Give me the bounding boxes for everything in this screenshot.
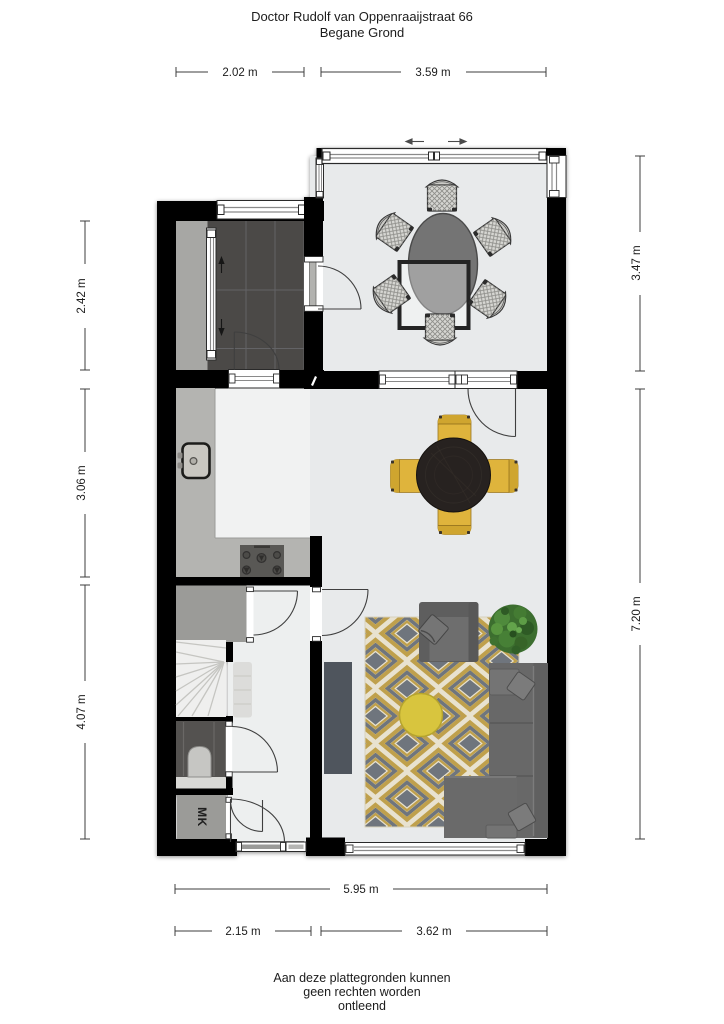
svg-text:5.95 m: 5.95 m (343, 884, 378, 896)
svg-text:MK: MK (195, 807, 209, 827)
svg-text:3.06 m: 3.06 m (76, 465, 88, 500)
svg-text:geen rechten worden: geen rechten worden (303, 985, 420, 999)
svg-text:2.02 m: 2.02 m (222, 67, 257, 79)
svg-text:Aan deze plattegronden kunnen: Aan deze plattegronden kunnen (273, 971, 450, 985)
svg-text:2.42 m: 2.42 m (76, 278, 88, 313)
svg-text:3.47 m: 3.47 m (631, 245, 643, 280)
svg-text:7.20 m: 7.20 m (631, 596, 643, 631)
svg-text:Begane Grond: Begane Grond (320, 25, 405, 40)
svg-text:3.59 m: 3.59 m (415, 67, 450, 79)
svg-text:4.07 m: 4.07 m (76, 694, 88, 729)
svg-text:ontleend: ontleend (338, 999, 386, 1013)
svg-text:Doctor Rudolf van Oppenraaijst: Doctor Rudolf van Oppenraaijstraat 66 (251, 9, 473, 24)
svg-text:2.15 m: 2.15 m (225, 926, 260, 938)
svg-text:3.62 m: 3.62 m (416, 926, 451, 938)
